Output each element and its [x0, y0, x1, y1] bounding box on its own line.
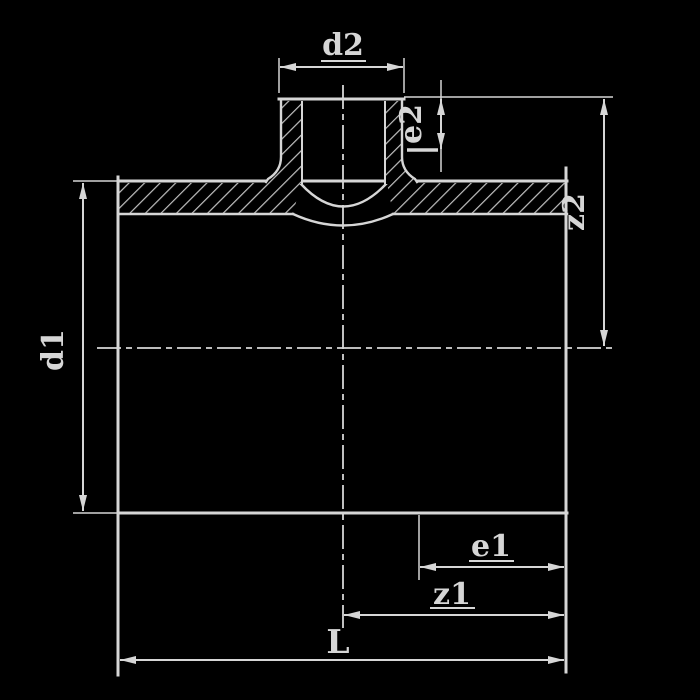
dimension-z1: z1 — [344, 577, 564, 615]
d1-label: d1 — [36, 329, 71, 371]
drawing-canvas: d2 e2 z2 d1 e1 z1 L — [0, 0, 700, 700]
dimension-e2: e2 — [394, 80, 613, 172]
dimension-e1: e1 — [419, 515, 564, 580]
z1-label: z1 — [433, 577, 471, 612]
wall-section-hatch-right — [387, 183, 567, 214]
centerlines — [97, 85, 613, 628]
dimension-d1: d1 — [36, 183, 83, 511]
dimension-d2: d2 — [279, 28, 404, 93]
branch-wall-hatch-left — [265, 101, 302, 184]
dimension-z2: z2 — [557, 99, 604, 346]
branch-outer-wall-left — [266, 99, 281, 182]
e1-label: e1 — [471, 529, 511, 564]
technical-drawing: d2 e2 z2 d1 e1 z1 L — [0, 0, 700, 700]
dimension-L: L — [120, 622, 564, 661]
pipe-body — [73, 168, 567, 675]
wall-section-hatch-left — [119, 183, 301, 214]
e2-label: e2 — [394, 104, 429, 144]
L-label: L — [326, 622, 349, 661]
d2-label: d2 — [322, 28, 364, 63]
z2-label: z2 — [557, 193, 592, 231]
